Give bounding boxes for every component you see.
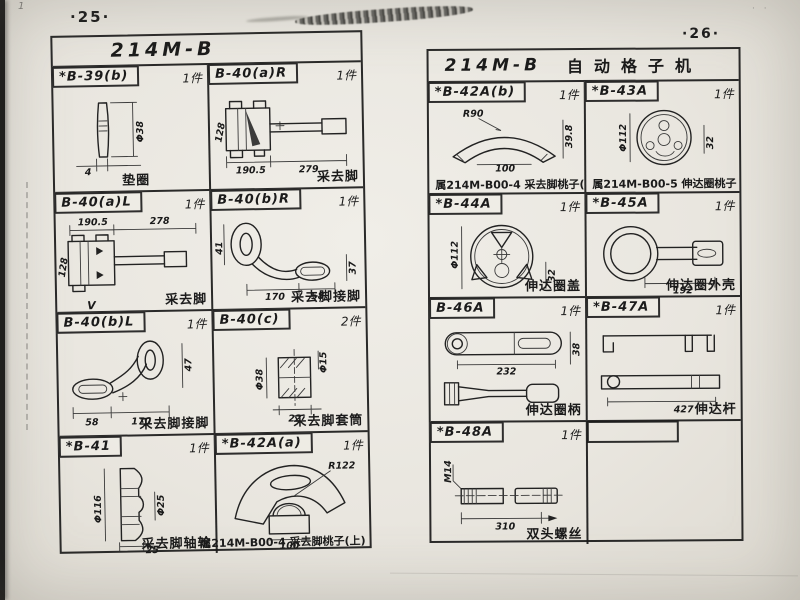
page-fold-line [390, 573, 798, 577]
cell-b43a: *B-43A 1件 Φ112 32 [584, 81, 740, 174]
series-title: 214M-B [445, 55, 542, 76]
parts-table-page-25: 214M-B *B-39(b) 1件 Φ38 4 垫圈 B-40(a)R 1件 [50, 30, 371, 554]
part-number: B-40(c) [219, 312, 279, 328]
part-caption: 属214M-B00-4 采去脚桃子(上) [200, 532, 366, 551]
table-row: B-40(a)L 1件 190.5 278 128 V 采去脚 [55, 188, 365, 314]
quantity-label: 1件 [339, 192, 359, 209]
scan-noise-dots: · · [752, 4, 770, 14]
machine-name: 自动格子机 [567, 52, 702, 77]
photocopy-smudge [295, 3, 473, 28]
part-number: *B-42A(a) [222, 435, 302, 451]
part-caption: 伸达圈盖 [525, 275, 581, 294]
part-number: *B-47A [593, 300, 649, 315]
caption-strip: 属214M-B00-4 采去脚桃子(下) 属214M-B00-5 伸达圈桃子 [429, 173, 739, 195]
part-number: B-46A [436, 301, 485, 316]
dim-diameter: Φ112 [450, 240, 461, 268]
dim-dia1: Φ38 [254, 368, 265, 390]
quantity-label: 1件 [560, 198, 580, 215]
table-row: B-46A 1件 232 38 伸达圈柄 [430, 297, 741, 423]
cell-b40bR: B-40(b)R 1件 41 170 58 37 采去脚接脚 [209, 188, 365, 309]
dim-radius: R122 [328, 460, 356, 472]
quantity-label: 1件 [559, 86, 579, 103]
dim-radius: R90 [463, 109, 484, 120]
page-number-26: ·26· [682, 26, 720, 42]
dim-length: 427 [673, 404, 694, 415]
corner-mark: 1 [18, 1, 24, 12]
part-number-box: *B-39(b) [52, 65, 140, 88]
dim-width: 4 [84, 167, 92, 178]
dim-l1: 170 [265, 292, 285, 303]
part-caption: 采去脚套筒 [293, 409, 363, 429]
dim-height: 39.8 [564, 124, 575, 148]
quantity-label: 1件 [185, 195, 205, 212]
empty-part-number-box [587, 420, 679, 443]
dim-l1: 190.5 [78, 217, 109, 229]
part-number: *B-44A [435, 197, 491, 212]
part-caption: 采去脚 [317, 165, 359, 185]
binding-perforation [26, 182, 28, 430]
part-number-box: B-40(b)R [210, 188, 301, 211]
cell-empty [586, 421, 742, 544]
dim-length: 232 [496, 366, 516, 377]
dim-diameter: Φ38 [135, 120, 146, 142]
part-number-box: B-46A [429, 298, 496, 319]
cell-b41: *B-41 1件 Φ116 Φ25 25 采去脚轴轮 [60, 435, 216, 556]
cell-b46a: B-46A 1件 232 38 伸达圈柄 [430, 298, 586, 421]
dim-l0: 58 [85, 417, 99, 428]
caption-b43a: 属214M-B00-5 伸达圈桃子 [584, 173, 739, 192]
quantity-label: 1件 [343, 436, 363, 453]
cell-b45a: *B-45A 1件 192 伸达圈外壳 [584, 193, 740, 296]
cell-b40c: B-40(c) 2件 Φ38 Φ15 22 采去脚套筒 [211, 308, 367, 433]
dim-diameter: Φ112 [618, 123, 629, 151]
quantity-label: 1件 [715, 197, 735, 214]
table-row: *B-39(b) 1件 Φ38 4 垫圈 B-40(a)R 1件 [53, 62, 363, 194]
part-number: B-40(b)L [63, 314, 134, 330]
quantity-label: 1件 [336, 66, 356, 83]
cell-b42ab: *B-42A(b) 1件 R90 39.8 100 [429, 82, 585, 175]
part-number-box: B-40(b)L [56, 311, 145, 334]
drawing-cam-disc: Φ112 32 [586, 103, 742, 172]
quantity-label: 1件 [715, 301, 735, 318]
table-row: *B-44A 1件 Φ112 32 伸达圈盖 [429, 193, 740, 299]
part-number-box: *B-48A [430, 421, 504, 442]
table-row: B-40(b)L 1件 58 170 47 采去脚接脚 [57, 308, 367, 438]
part-number: *B-41 [66, 439, 111, 455]
part-number: *B-43A [592, 84, 648, 99]
view-mark: V [87, 299, 97, 312]
quantity-label: 1件 [714, 85, 734, 102]
part-number: *B-48A [437, 425, 493, 440]
scan-edge-shadow [0, 0, 5, 600]
dim-dia2: Φ25 [156, 494, 167, 516]
part-caption: 采去脚 [165, 288, 207, 308]
series-title: 214M-B [110, 38, 215, 62]
part-number-box: B-40(a)R [208, 62, 298, 85]
cell-b40aR: B-40(a)R 1件 128 190.5 279 采去脚 [207, 62, 363, 189]
quantity-label: 1件 [560, 302, 580, 319]
part-caption: 采去脚接脚 [291, 285, 361, 305]
cell-b40aL: B-40(a)L 1件 190.5 278 128 V 采去脚 [55, 191, 211, 312]
dim-r: 37 [347, 261, 358, 275]
dim-l1: 190.5 [236, 165, 267, 177]
part-number-box: *B-45A [585, 193, 659, 214]
dim-length: 310 [495, 521, 515, 532]
part-caption: 伸达杆 [695, 398, 737, 417]
dim-dia2: Φ15 [318, 351, 329, 373]
cell-b47a: *B-47A 1件 427 伸达杆 [585, 297, 741, 420]
part-number: *B-42A(b) [435, 84, 516, 99]
dim-l2: 278 [150, 216, 170, 227]
part-number-box: B-40(c) [212, 309, 290, 331]
dim-height: 38 [571, 342, 582, 356]
part-caption: 垫圈 [122, 169, 150, 189]
scanned-page-background: 1 · · ·25· ·26· 214M-B *B-39(b) 1件 Φ38 4… [0, 0, 800, 600]
dim-height: 32 [705, 136, 716, 150]
parts-table-page-26: 214M-B 自动格子机 *B-42A(b) 1件 R90 39.8 100 [426, 47, 743, 543]
page-number-25: ·25· [70, 8, 110, 26]
part-number: B-40(b)R [217, 192, 290, 208]
part-number: B-40(a)L [61, 194, 132, 210]
part-number: *B-45A [592, 196, 648, 211]
quantity-label: 1件 [189, 439, 209, 456]
part-number-box: B-40(a)L [54, 191, 143, 214]
part-number-box: *B-44A [428, 194, 502, 215]
quantity-label: 1件 [182, 69, 202, 86]
table-row: *B-41 1件 Φ116 Φ25 25 采去脚轴轮 *B-42A(a) 1件 [60, 432, 370, 556]
table-row: *B-42A(b) 1件 R90 39.8 100 *B-43A 1件 [429, 81, 740, 175]
part-number-box: *B-42A(a) [215, 432, 313, 455]
part-number-box: *B-42A(b) [428, 81, 527, 103]
part-number: *B-39(b) [59, 68, 129, 84]
part-number-box: *B-41 [59, 436, 123, 458]
part-caption: 采去脚接脚 [139, 412, 209, 432]
drawing-foot-cam-lower: R90 39.8 100 [429, 104, 585, 173]
dim-w: 100 [495, 163, 515, 174]
cell-b39b: *B-39(b) 1件 Φ38 4 垫圈 [53, 65, 209, 192]
cell-b42aa: *B-42A(a) 1件 R122 100 属214M-B00-4 采去脚桃子(… [214, 432, 370, 553]
part-number-box: *B-43A [585, 81, 659, 102]
table-header-26: 214M-B 自动格子机 [429, 49, 739, 83]
part-number-box: *B-47A [586, 297, 660, 318]
quantity-label: 1件 [187, 315, 207, 332]
dim-thread: M14 [443, 460, 454, 483]
cell-b44a: *B-44A 1件 Φ112 32 伸达圈盖 [429, 194, 585, 297]
part-caption: 伸达圈柄 [526, 399, 582, 418]
caption-b42ab: 属214M-B00-4 采去脚桃子(下) [429, 174, 584, 193]
dim-height: 41 [214, 241, 225, 255]
quantity-label: 1件 [561, 426, 581, 443]
part-caption: 双头螺丝 [526, 523, 582, 542]
cell-b40bL: B-40(b)L 1件 58 170 47 采去脚接脚 [57, 311, 213, 436]
table-row: *B-48A 1件 M14 310 双头螺丝 [431, 421, 742, 545]
part-number: B-40(a)R [215, 66, 287, 82]
quantity-label: 2件 [341, 312, 361, 329]
cell-b48a: *B-48A 1件 M14 310 双头螺丝 [431, 422, 587, 545]
dim-dia1: Φ116 [93, 495, 105, 523]
dim-r: 47 [183, 358, 194, 373]
part-caption: 伸达圈外壳 [666, 274, 736, 293]
